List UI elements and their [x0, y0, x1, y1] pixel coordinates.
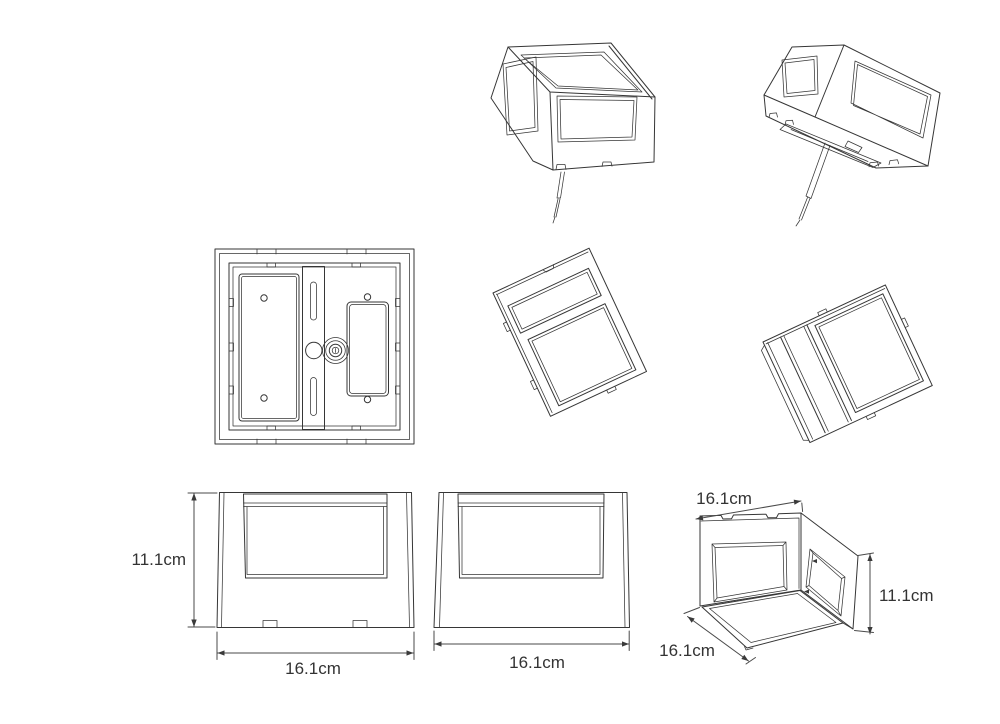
reflector-mark: [812, 559, 817, 563]
mounting-slot-bottom: [311, 378, 317, 416]
underside-recess: [780, 124, 881, 168]
dim-label-iso-width: 16.1cm: [696, 489, 752, 508]
arrowhead: [191, 620, 196, 628]
wall-thickness-lines: [222, 493, 410, 627]
mounting-slot-top: [311, 282, 317, 320]
dim-label-side-width: 16.1cm: [285, 659, 341, 678]
view-front-elevation: [434, 493, 630, 628]
top-opening: [782, 56, 818, 97]
top-band: [508, 268, 601, 333]
view-back-plate: [215, 249, 414, 444]
box-silhouette: [491, 43, 655, 170]
arrowhead: [622, 641, 629, 646]
corner-edge: [745, 623, 854, 650]
glass-panel-inner: [710, 594, 837, 643]
center-hole: [306, 342, 322, 358]
technical-drawing-page: 11.1cm 16.1cm 16.1cm 16.1cm: [0, 0, 1000, 724]
arrowhead: [794, 500, 801, 505]
view-front-tilted: [490, 248, 648, 421]
front-window: [557, 96, 637, 142]
outline: [493, 248, 647, 416]
terminal-cover: [347, 302, 389, 396]
top-face-edges: [508, 46, 655, 99]
left-panel: [239, 274, 299, 421]
mounting-face-inner: [701, 518, 799, 589]
body-outline: [217, 493, 414, 628]
dim-label-iso-depth: 16.1cm: [659, 641, 715, 660]
side-band-inner: [784, 326, 849, 431]
width-dim-line: [217, 632, 414, 660]
outline: [763, 285, 932, 443]
width-dim-line: [434, 631, 629, 651]
dim-label-iso-height: 11.1cm: [879, 586, 934, 605]
edge-ticks: [229, 263, 400, 430]
screw-hole: [261, 295, 267, 301]
view-isometric-dimensions: [700, 513, 858, 650]
arrowhead: [191, 493, 196, 501]
right-face: [801, 513, 858, 629]
wall-thickness-lines: [440, 493, 626, 627]
bottom-tabs: [263, 621, 367, 628]
front-face-bottom-edge: [815, 117, 928, 166]
edge-doubling: [496, 252, 643, 413]
arrowhead: [867, 554, 872, 561]
technical-drawing-canvas: 11.1cm 16.1cm 16.1cm 16.1cm: [0, 0, 1000, 724]
dim-label-front-width: 16.1cm: [509, 653, 565, 672]
screw-hole: [364, 396, 370, 402]
view-side-elevation: [217, 493, 414, 628]
power-wire: [553, 172, 565, 223]
power-wire: [796, 143, 830, 226]
underside-notches: [769, 113, 899, 167]
dim-label-side-height: 11.1cm: [132, 550, 187, 569]
dimension-front: 16.1cm: [434, 631, 629, 672]
top-face-edges: [764, 45, 844, 117]
arrowhead: [867, 627, 872, 634]
window-detail: [458, 503, 604, 575]
outer-frame-inner: [220, 254, 410, 440]
arrowhead: [435, 641, 442, 646]
screw-hole: [261, 395, 267, 401]
screw-hole: [364, 294, 370, 300]
inner-frame: [229, 263, 400, 430]
window-inner: [532, 308, 632, 402]
view-side-tilted: [757, 280, 937, 448]
terminal-cover-inner: [350, 305, 387, 394]
side-band: [781, 325, 852, 433]
outer-frame: [215, 249, 414, 444]
view-top-perspective: [491, 43, 655, 223]
inner-frame-inner: [233, 267, 396, 426]
dimension-side: 11.1cm 16.1cm: [132, 493, 415, 678]
arrowhead: [407, 650, 414, 655]
front-window: [851, 61, 931, 138]
top-band-inner: [512, 272, 597, 329]
arrowhead: [741, 655, 748, 661]
window-detail: [244, 503, 388, 575]
front-window: [712, 542, 787, 602]
view-underside-perspective: [764, 45, 940, 226]
front-corner-edge: [550, 92, 553, 170]
arrowhead: [218, 650, 225, 655]
right-face-tick: [821, 528, 825, 531]
height-dim-line: [188, 493, 217, 627]
arrowhead: [688, 617, 695, 623]
left-panel-inner: [242, 277, 297, 419]
side-window: [806, 549, 845, 616]
